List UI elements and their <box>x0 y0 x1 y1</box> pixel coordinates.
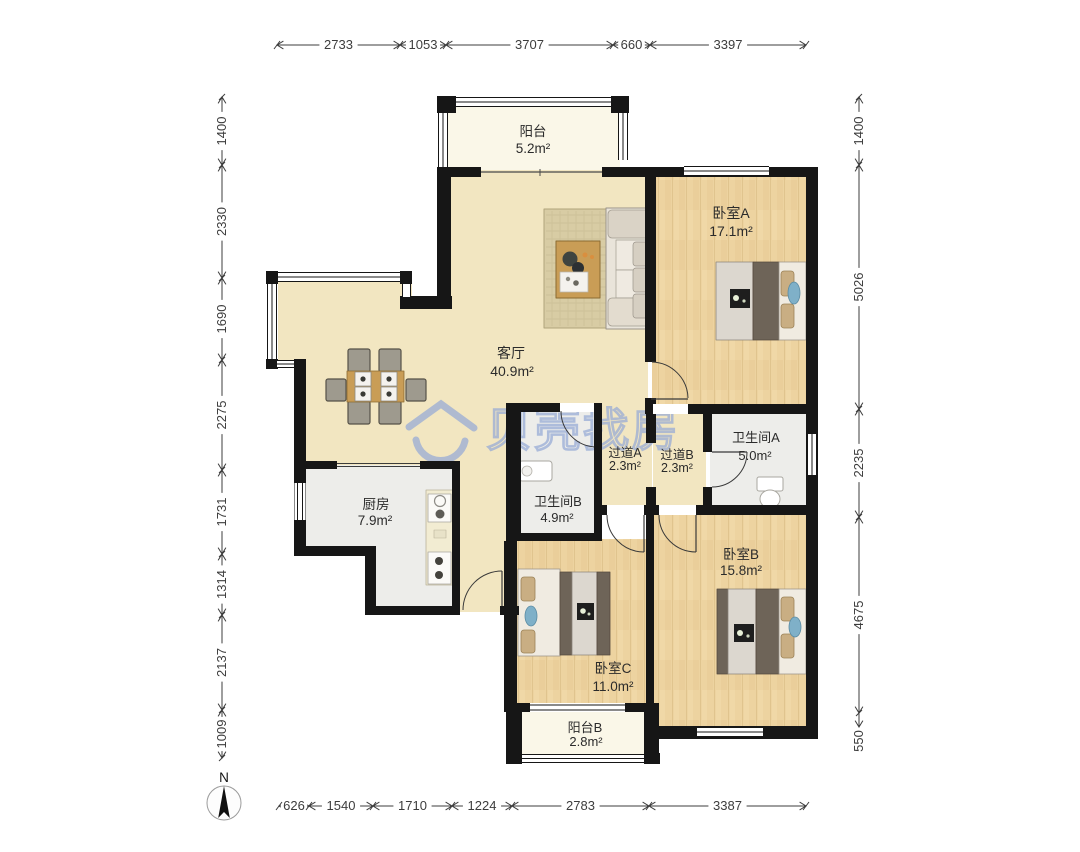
svg-text:卧室A: 卧室A <box>712 205 750 221</box>
svg-text:阳台B: 阳台B <box>568 720 603 735</box>
svg-text:客厅: 客厅 <box>497 345 525 361</box>
svg-text:3707: 3707 <box>515 37 544 52</box>
svg-text:2235: 2235 <box>851 449 866 478</box>
svg-text:40.9m²: 40.9m² <box>490 363 534 379</box>
svg-text:1400: 1400 <box>214 117 229 146</box>
svg-text:3397: 3397 <box>714 37 743 52</box>
svg-text:1053: 1053 <box>409 37 438 52</box>
svg-text:2137: 2137 <box>214 648 229 677</box>
svg-text:1731: 1731 <box>214 498 229 527</box>
svg-text:5026: 5026 <box>851 273 866 302</box>
svg-text:1314: 1314 <box>214 570 229 599</box>
svg-text:卫生间B: 卫生间B <box>534 494 582 509</box>
svg-text:1540: 1540 <box>327 798 356 813</box>
svg-text:阳台: 阳台 <box>520 124 547 139</box>
svg-text:2275: 2275 <box>214 401 229 430</box>
svg-text:2.8m²: 2.8m² <box>569 734 603 749</box>
svg-text:2.3m²: 2.3m² <box>661 461 693 475</box>
svg-text:660: 660 <box>621 37 643 52</box>
svg-text:2733: 2733 <box>324 37 353 52</box>
svg-text:4.9m²: 4.9m² <box>540 510 574 525</box>
svg-text:2330: 2330 <box>214 207 229 236</box>
svg-text:过道A: 过道A <box>608 446 642 460</box>
svg-text:4675: 4675 <box>851 601 866 630</box>
svg-text:1009: 1009 <box>214 720 229 749</box>
svg-text:卧室B: 卧室B <box>723 546 759 562</box>
svg-text:1690: 1690 <box>214 305 229 334</box>
svg-text:11.0m²: 11.0m² <box>592 679 634 694</box>
svg-text:626: 626 <box>283 798 305 813</box>
svg-text:7.9m²: 7.9m² <box>358 513 393 528</box>
svg-text:卧室C: 卧室C <box>595 660 632 676</box>
svg-text:550: 550 <box>851 730 866 752</box>
svg-text:1710: 1710 <box>398 798 427 813</box>
svg-text:17.1m²: 17.1m² <box>709 223 753 239</box>
svg-text:5.0m²: 5.0m² <box>738 448 772 463</box>
svg-text:N: N <box>219 770 229 785</box>
svg-text:2.3m²: 2.3m² <box>609 459 641 473</box>
svg-text:3387: 3387 <box>713 798 742 813</box>
svg-text:1400: 1400 <box>851 117 866 146</box>
svg-text:2783: 2783 <box>566 798 595 813</box>
svg-text:1224: 1224 <box>468 798 497 813</box>
svg-text:厨房: 厨房 <box>363 497 390 512</box>
svg-text:15.8m²: 15.8m² <box>720 563 763 578</box>
svg-text:过道B: 过道B <box>660 448 693 462</box>
svg-text:卫生间A: 卫生间A <box>732 430 780 445</box>
svg-text:5.2m²: 5.2m² <box>516 141 551 156</box>
